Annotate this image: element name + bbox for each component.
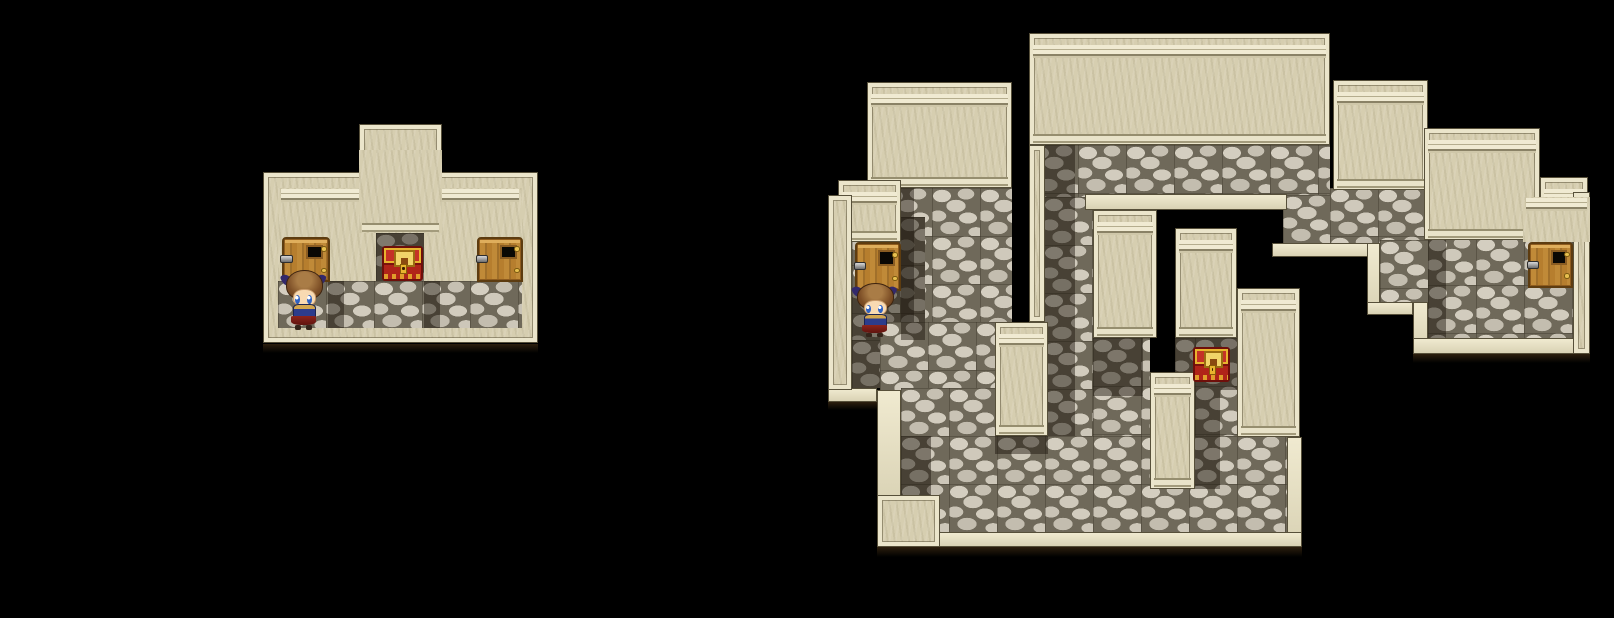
left-step-ledge (828, 388, 877, 402)
left-edge-wall (828, 195, 852, 390)
left-edge-strip (877, 390, 901, 507)
bottom-edge (901, 532, 1302, 547)
shadow-under-t-left (1093, 338, 1143, 396)
drop-left-step (828, 402, 877, 410)
shadow-under-block-left (1044, 145, 1075, 436)
floor-right-ledge (1380, 240, 1428, 304)
step-block-1 (1333, 80, 1428, 190)
shadow-bottom-left (901, 436, 931, 495)
stair-ledge-3 (1367, 302, 1413, 315)
bottom-left-corner (877, 495, 940, 547)
game-screen (0, 0, 1614, 618)
bottom-right-edge (1287, 437, 1302, 547)
stair-ledge-1 (1272, 243, 1380, 257)
door-handle-icon (1527, 261, 1539, 269)
right-bottom-ledge (1413, 338, 1590, 354)
door-hinge-icon (1564, 273, 1570, 278)
character-foot (877, 333, 883, 337)
treasure-chest[interactable] (1193, 347, 1230, 382)
wall-above-right-door (1523, 197, 1590, 242)
door-hinge-icon (892, 252, 898, 258)
right-pillar (1237, 288, 1300, 437)
character-foot (866, 333, 872, 337)
shadow-alcove (901, 217, 925, 340)
corridor-lower-2 (901, 388, 995, 436)
big-block-left-wall (1029, 145, 1045, 322)
door-handle-icon (854, 262, 866, 270)
left-pillar (995, 322, 1048, 436)
shadow-right-of-pillar (1195, 390, 1220, 489)
shadow-right-room (1428, 237, 1446, 338)
door-hinge-icon (1564, 252, 1570, 257)
hole-top-ledge (1085, 194, 1287, 210)
center-pillar (1150, 372, 1195, 489)
t-pillar-right (1175, 228, 1237, 338)
pillar-column-top (867, 82, 1012, 188)
map-large-dungeon (0, 0, 1614, 618)
character-cape (862, 325, 886, 333)
door-far-right[interactable] (1528, 242, 1573, 288)
player-character[interactable] (856, 283, 893, 337)
floor-under-big-block (1030, 145, 1330, 197)
chest-lock-icon (1209, 365, 1216, 374)
t-pillar-left (1093, 210, 1157, 338)
big-block (1029, 33, 1330, 145)
floor-under-step1 (1330, 188, 1428, 243)
floor-bottom-hall (901, 436, 1287, 532)
shadow-under-pillar-a (995, 436, 1048, 454)
chest-gold-trim (1195, 375, 1228, 380)
drop-right-room (1413, 354, 1590, 363)
drop-bottom (877, 547, 1302, 557)
floor-nub (1283, 195, 1330, 243)
